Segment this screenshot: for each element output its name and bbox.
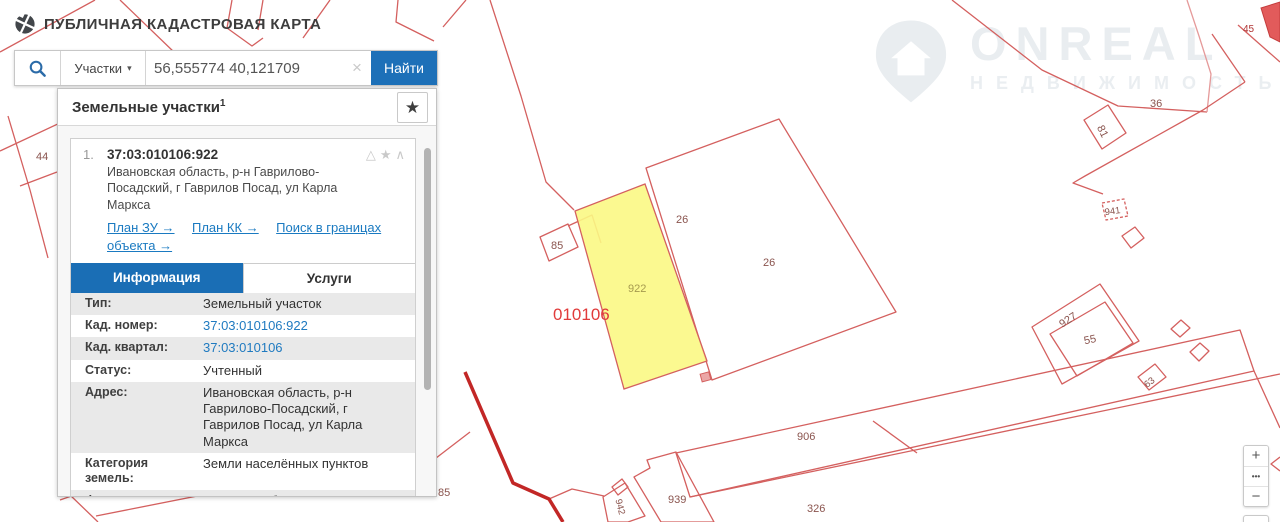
parcel-label: 326	[807, 503, 825, 515]
search-category-value: Участки	[74, 61, 122, 76]
favorites-button[interactable]: ★	[397, 92, 428, 123]
results-panel: Земельные участки1 ★ 1. 37:03:010106:922…	[57, 88, 437, 497]
table-row: Тип: Земельный участок	[71, 293, 415, 315]
field-label: Адрес:	[71, 382, 203, 453]
item-address: Ивановская область, р-н Гаврилово-Посадс…	[107, 164, 347, 213]
building-footprint	[700, 372, 711, 382]
search-icon	[15, 51, 60, 85]
parcel-label: 85	[438, 487, 450, 499]
search-bar: Участки ▾ × Найти	[14, 50, 438, 86]
road-line	[465, 372, 563, 522]
control-stub-button[interactable]	[1243, 515, 1269, 522]
panel-scrollbar[interactable]	[424, 148, 431, 390]
quarter-label: 010106	[553, 305, 610, 324]
cadastral-number-link[interactable]: 37:03:010106:922	[203, 315, 415, 337]
quarter-link[interactable]: 37:03:010106	[203, 337, 415, 359]
field-label: Категория земель:	[71, 453, 203, 490]
cadastral-number: 37:03:010106:922	[107, 147, 347, 162]
result-item-card: 1. 37:03:010106:922 Ивановская область, …	[70, 138, 416, 497]
plan-zu-link[interactable]: План ЗУ →	[107, 220, 175, 235]
clear-search-icon[interactable]: ×	[343, 51, 371, 85]
pkk-logo-icon	[14, 13, 36, 35]
field-value: Земли населённых пунктов	[203, 453, 415, 490]
parcel-label: 85	[551, 240, 563, 252]
field-value: Земельный участок	[203, 293, 415, 315]
parcel-label: 26	[763, 257, 775, 269]
results-header: Земельные участки1 ★	[58, 89, 436, 126]
app-window: ONREAL НЕДВИЖИМОСТЬ	[0, 0, 1280, 522]
parcel-label: 44	[36, 151, 48, 163]
parcel-label: 941	[1104, 205, 1121, 218]
field-label: Тип:	[71, 293, 203, 315]
more-options-button[interactable]: •••	[1244, 466, 1268, 486]
tab-information[interactable]: Информация	[71, 263, 243, 293]
table-row: Форма собственности: Частная собственнос…	[71, 490, 415, 497]
field-value: Учтенный	[203, 360, 415, 382]
highlighted-parcel-45[interactable]	[1261, 2, 1280, 42]
parcel-label: 942	[612, 498, 627, 516]
app-logo-home[interactable]: ПУБЛИЧНАЯ КАДАСТРОВАЯ КАРТА	[14, 13, 321, 35]
collapse-icon[interactable]: ∧	[395, 147, 405, 163]
field-label: Статус:	[71, 360, 203, 382]
app-title: ПУБЛИЧНАЯ КАДАСТРОВАЯ КАРТА	[44, 16, 321, 33]
result-index: 1.	[83, 147, 107, 213]
info-table: Тип: Земельный участок Кад. номер: 37:03…	[71, 293, 415, 497]
parcel-label: 45	[1243, 24, 1255, 35]
results-count: 1	[220, 98, 226, 109]
report-problem-icon[interactable]: △	[366, 147, 376, 163]
field-value: Частная собственность	[203, 490, 415, 497]
table-row: Адрес: Ивановская область, р-н Гаврилово…	[71, 382, 415, 453]
parcel-label: 906	[797, 431, 815, 443]
plan-kk-link[interactable]: План КК →	[192, 220, 259, 235]
zoom-out-button[interactable]: −	[1244, 486, 1268, 506]
selected-parcel-label: 922	[628, 283, 646, 295]
parcel-label: 63	[1142, 375, 1157, 390]
search-input[interactable]	[146, 51, 343, 85]
item-tabs: Информация Услуги	[71, 263, 415, 293]
map-controls: + ••• −	[1243, 445, 1269, 522]
field-value: Ивановская область, р-н Гаврилово-Посадс…	[203, 382, 415, 453]
parcel-label: 55	[1083, 333, 1097, 347]
table-row: Статус: Учтенный	[71, 360, 415, 382]
table-row: Категория земель: Земли населённых пункт…	[71, 453, 415, 490]
zoom-in-button[interactable]: +	[1244, 446, 1268, 466]
chevron-down-icon: ▾	[127, 63, 132, 74]
table-row: Кад. квартал: 37:03:010106	[71, 337, 415, 359]
parcel-label: 36	[1150, 98, 1162, 110]
parcel-label: 81	[1094, 123, 1110, 139]
item-links: План ЗУ → План КК → Поиск в границах объ…	[71, 215, 415, 263]
results-scroll-area: 1. 37:03:010106:922 Ивановская область, …	[58, 126, 436, 497]
result-item-header: 1. 37:03:010106:922 Ивановская область, …	[71, 139, 415, 215]
field-label: Кад. номер:	[71, 315, 203, 337]
results-title: Земельные участки1	[72, 98, 225, 116]
parcel-label: 939	[668, 494, 686, 506]
field-label: Кад. квартал:	[71, 337, 203, 359]
parcel-label: 26	[676, 214, 688, 226]
tab-services[interactable]: Услуги	[243, 263, 416, 293]
table-row: Кад. номер: 37:03:010106:922	[71, 315, 415, 337]
search-category-dropdown[interactable]: Участки ▾	[60, 51, 146, 85]
field-label: Форма собственности:	[71, 490, 203, 497]
find-button[interactable]: Найти	[371, 51, 437, 85]
favorite-icon[interactable]: ★	[380, 147, 392, 163]
